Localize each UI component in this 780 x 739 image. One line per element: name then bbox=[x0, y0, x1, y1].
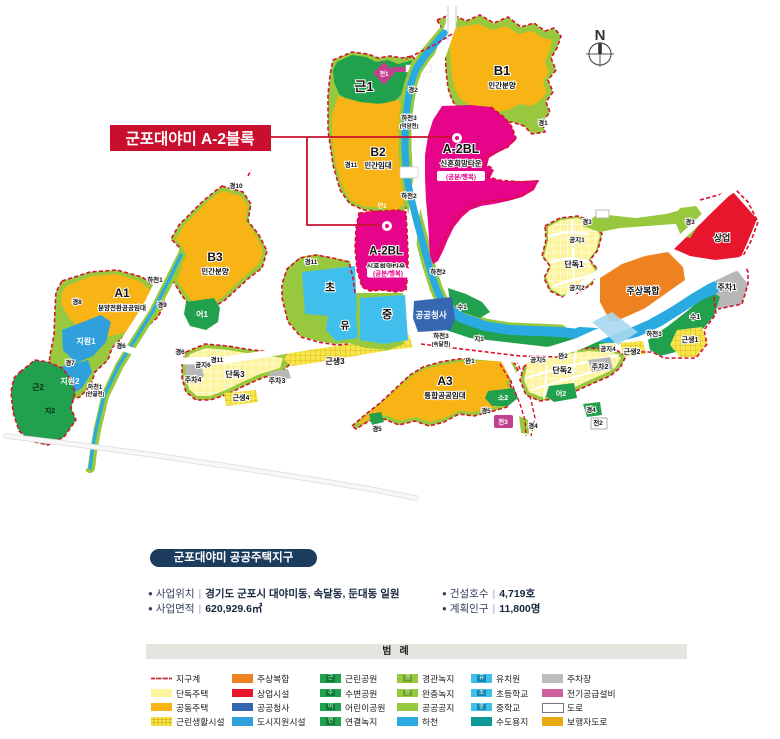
svg-text:경8: 경8 bbox=[72, 297, 82, 306]
svg-text:지1: 지1 bbox=[474, 334, 484, 343]
svg-text:공지1: 공지1 bbox=[569, 235, 585, 244]
svg-text:A-2BL: A-2BL bbox=[443, 142, 480, 156]
svg-text:민간분양: 민간분양 bbox=[488, 80, 516, 90]
svg-text:단독3: 단독3 bbox=[225, 369, 245, 379]
svg-text:완2: 완2 bbox=[558, 351, 568, 360]
svg-text:(공분/행복): (공분/행복) bbox=[446, 172, 476, 181]
svg-text:경6: 경6 bbox=[175, 347, 185, 356]
svg-text:중: 중 bbox=[382, 308, 392, 321]
svg-text:공공청사: 공공청사 bbox=[415, 310, 446, 320]
svg-text:어2: 어2 bbox=[556, 389, 566, 398]
svg-text:근2: 근2 bbox=[32, 383, 44, 392]
svg-text:근1: 근1 bbox=[354, 79, 373, 94]
svg-text:경6: 경6 bbox=[116, 341, 126, 350]
svg-text:지원2: 지원2 bbox=[60, 376, 80, 386]
svg-text:공지5: 공지5 bbox=[530, 355, 546, 364]
svg-text:수1: 수1 bbox=[690, 313, 700, 321]
svg-text:연1: 연1 bbox=[378, 202, 388, 210]
svg-text:(공분/행복): (공분/행복) bbox=[373, 269, 403, 278]
svg-text:하천1: 하천1 bbox=[88, 383, 103, 391]
svg-text:근생4: 근생4 bbox=[233, 393, 250, 402]
svg-text:소2: 소2 bbox=[498, 394, 508, 402]
svg-text:공지4: 공지4 bbox=[600, 344, 616, 353]
svg-text:(속달천): (속달천) bbox=[432, 340, 451, 348]
svg-text:근생2: 근생2 bbox=[624, 347, 641, 356]
svg-text:A-2BL: A-2BL bbox=[369, 246, 403, 258]
svg-text:전3: 전3 bbox=[498, 417, 508, 426]
svg-text:경11: 경11 bbox=[305, 257, 318, 266]
svg-text:N: N bbox=[595, 27, 606, 44]
svg-text:B2: B2 bbox=[370, 145, 386, 159]
svg-text:초: 초 bbox=[325, 281, 335, 294]
svg-text:B3: B3 bbox=[207, 250, 223, 264]
svg-text:하천3: 하천3 bbox=[433, 331, 449, 340]
svg-text:분양전환공공임대: 분양전환공공임대 bbox=[98, 303, 146, 312]
svg-text:경4: 경4 bbox=[528, 421, 538, 430]
svg-text:주차4: 주차4 bbox=[185, 375, 202, 384]
svg-text:경3: 경3 bbox=[582, 217, 592, 226]
svg-text:주차2: 주차2 bbox=[592, 362, 609, 371]
svg-text:경4: 경4 bbox=[586, 405, 596, 414]
svg-text:A3: A3 bbox=[437, 374, 453, 388]
svg-text:경5: 경5 bbox=[481, 406, 491, 415]
svg-text:경9: 경9 bbox=[157, 300, 167, 309]
svg-text:B1: B1 bbox=[494, 63, 511, 78]
svg-text:(덕암천): (덕암천) bbox=[400, 122, 419, 130]
svg-text:근생1: 근생1 bbox=[682, 335, 699, 344]
svg-text:전1: 전1 bbox=[380, 70, 390, 78]
svg-text:하천2: 하천2 bbox=[401, 191, 417, 200]
svg-text:경1: 경1 bbox=[538, 118, 548, 127]
svg-text:하천3: 하천3 bbox=[401, 113, 417, 122]
svg-text:주차1: 주차1 bbox=[717, 282, 737, 292]
svg-text:상업: 상업 bbox=[714, 232, 731, 243]
svg-text:경11: 경11 bbox=[345, 160, 358, 169]
svg-text:경5: 경5 bbox=[372, 424, 382, 433]
svg-text:경2: 경2 bbox=[408, 85, 418, 94]
svg-text:경3: 경3 bbox=[685, 217, 695, 226]
svg-text:통합공공임대: 통합공공임대 bbox=[424, 390, 465, 400]
svg-text:(안골천): (안골천) bbox=[86, 390, 105, 398]
svg-text:A1: A1 bbox=[114, 286, 130, 300]
svg-text:단독2: 단독2 bbox=[552, 365, 572, 375]
svg-text:경11: 경11 bbox=[211, 355, 224, 364]
svg-text:경7: 경7 bbox=[65, 358, 75, 367]
svg-text:지2: 지2 bbox=[45, 406, 55, 415]
svg-text:수1: 수1 bbox=[457, 303, 467, 311]
svg-text:주상복합: 주상복합 bbox=[626, 285, 660, 296]
svg-text:완1: 완1 bbox=[465, 356, 475, 365]
svg-text:지원1: 지원1 bbox=[76, 336, 96, 346]
svg-text:유: 유 bbox=[340, 320, 349, 332]
svg-text:하천3: 하천3 bbox=[646, 329, 662, 338]
svg-text:공지2: 공지2 bbox=[569, 283, 585, 292]
svg-text:주차3: 주차3 bbox=[269, 376, 286, 385]
svg-text:공지6: 공지6 bbox=[195, 360, 211, 369]
svg-text:하천1: 하천1 bbox=[147, 275, 163, 284]
svg-text:단독1: 단독1 bbox=[564, 259, 584, 269]
svg-text:민간분양: 민간분양 bbox=[201, 266, 229, 276]
svg-text:어1: 어1 bbox=[196, 309, 208, 319]
svg-text:신혼희망타운: 신혼희망타운 bbox=[440, 158, 481, 168]
svg-text:경10: 경10 bbox=[229, 181, 243, 190]
svg-text:민간임대: 민간임대 bbox=[364, 160, 392, 170]
svg-text:하천2: 하천2 bbox=[430, 267, 446, 276]
svg-text:전2: 전2 bbox=[593, 418, 603, 427]
svg-text:군포대야미 A-2블록: 군포대야미 A-2블록 bbox=[125, 130, 254, 148]
svg-text:근생3: 근생3 bbox=[325, 356, 345, 366]
